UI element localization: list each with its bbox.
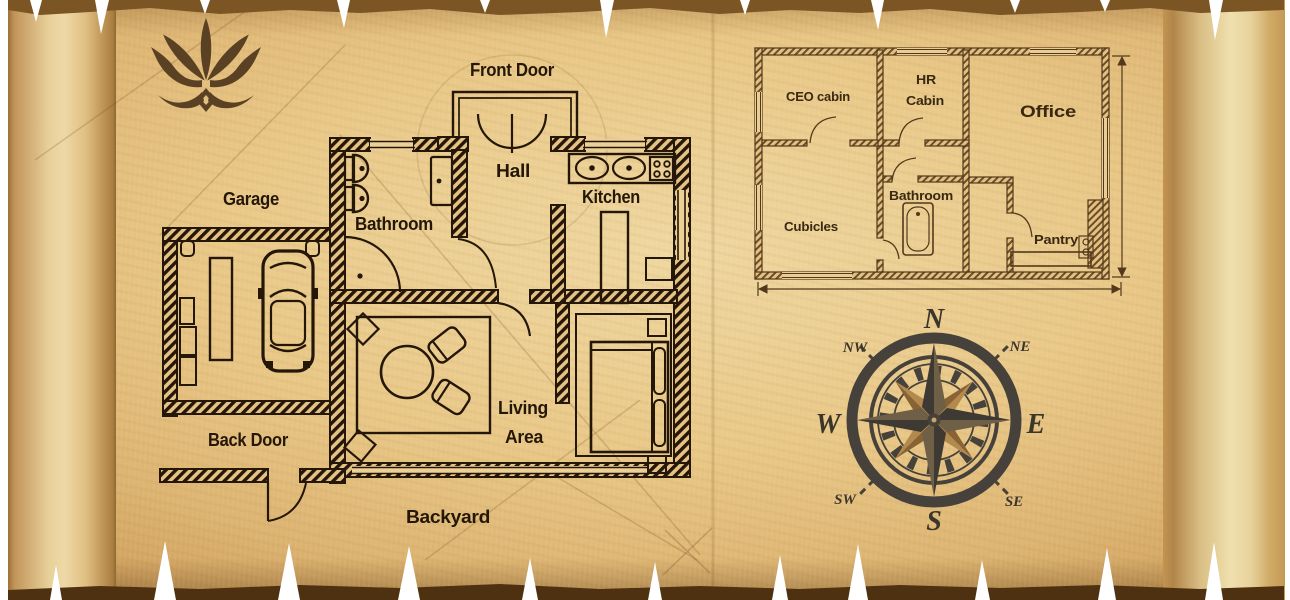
living-table	[381, 346, 433, 398]
bedroom-furniture	[576, 314, 671, 473]
lotus-petal-left	[159, 31, 208, 84]
label-pantry: Pantry	[1034, 232, 1079, 247]
window-north-kitchen	[583, 139, 647, 150]
nightstand	[648, 319, 666, 336]
label-office: Office	[1020, 102, 1076, 121]
window-east-bedroom	[676, 190, 688, 260]
label-hr-1: HR	[916, 72, 937, 87]
garage-workbench	[210, 258, 232, 360]
living-chair	[430, 378, 472, 417]
label-ceo-cabin: CEO cabin	[786, 89, 850, 104]
stove-icon	[650, 157, 673, 180]
label-living-2: Area	[505, 427, 544, 447]
lotus-base-diamond	[196, 88, 216, 112]
label-south: S	[926, 506, 942, 537]
plant-diamond	[345, 431, 376, 462]
label-kitchen: Kitchen	[582, 187, 640, 207]
pillow	[654, 400, 665, 446]
bed	[591, 342, 668, 452]
window-south	[352, 466, 648, 474]
label-southwest: SW	[834, 492, 857, 508]
label-living-1: Living	[498, 398, 548, 418]
label-hall: Hall	[496, 161, 530, 181]
label-northwest: NW	[842, 340, 869, 356]
label-cubicles: Cubicles	[784, 219, 838, 234]
office-labels: CEO cabin HR Cabin Office Cubicles Bathr…	[784, 72, 1079, 247]
back-door	[268, 482, 306, 521]
house-floor-plan: Front Door Hall Kitchen Garage Bathroom …	[160, 60, 690, 527]
garage-storage-boxes	[180, 298, 196, 385]
lotus-petal-center	[201, 18, 212, 80]
pillow	[654, 348, 665, 394]
torn-edge-top	[8, 0, 1284, 40]
parchment-scroll: Front Door Hall Kitchen Garage Bathroom …	[0, 0, 1290, 600]
lotus-logo	[151, 18, 261, 112]
living-chair	[426, 325, 468, 365]
living-room-furniture	[345, 313, 490, 461]
label-office-bathroom: Bathroom	[889, 188, 953, 203]
label-west: W	[816, 409, 843, 440]
kitchen-counter	[569, 154, 675, 183]
label-garage: Garage	[223, 189, 279, 209]
label-backyard: Backyard	[406, 507, 490, 527]
torn-edge-bottom	[8, 541, 1284, 600]
bathroom-shower	[345, 237, 400, 292]
blueprint-art: Front Door Hall Kitchen Garage Bathroom …	[0, 0, 1290, 600]
office-floor-plan: CEO cabin HR Cabin Office Cubicles Bathr…	[755, 48, 1130, 296]
garage-car	[258, 251, 318, 371]
label-front-door: Front Door	[470, 60, 554, 80]
label-north: N	[923, 304, 946, 335]
window-north-bathroom	[368, 139, 415, 150]
living-rug	[357, 317, 490, 433]
label-bathroom: Bathroom	[355, 214, 433, 234]
garage-door-hinges	[181, 241, 319, 256]
label-northeast: NE	[1009, 339, 1031, 355]
compass-rose: N S W E NW NE SW SE	[816, 304, 1046, 537]
label-east: E	[1026, 409, 1046, 440]
lotus-petal-right	[203, 31, 252, 84]
label-southeast: SE	[1005, 494, 1023, 510]
label-hr-2: Cabin	[906, 93, 944, 108]
living-door-arc	[498, 303, 530, 336]
kitchen-cabinet	[646, 258, 672, 280]
label-back-door: Back Door	[208, 430, 288, 450]
office-bathtub	[903, 203, 933, 255]
